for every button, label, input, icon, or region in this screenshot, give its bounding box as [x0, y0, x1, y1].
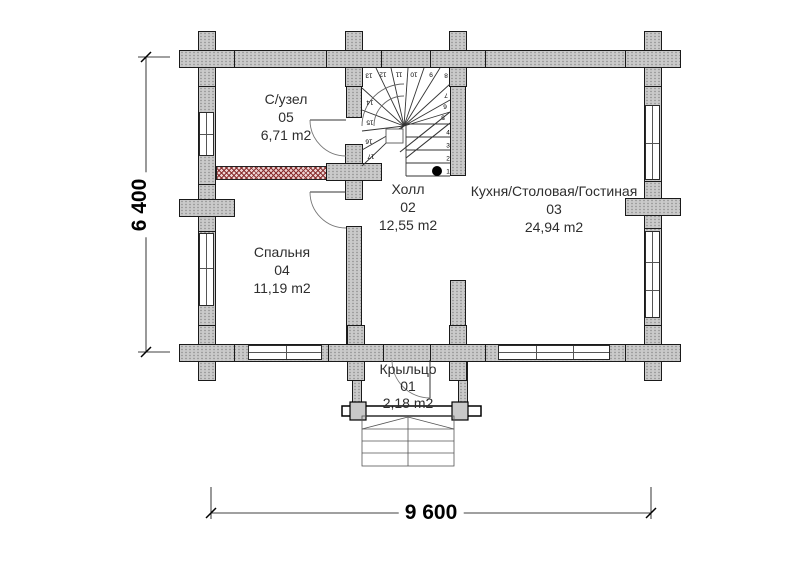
room-area: 12,55 m2	[379, 216, 437, 234]
dimension-width: 9 600	[399, 501, 464, 525]
room-label-bathroom: С/узел 05 6,71 m2	[261, 90, 312, 144]
stair-step-number: 11	[395, 71, 402, 78]
stair-step-number: 9	[429, 71, 433, 78]
stair-step-number: 14	[366, 99, 374, 106]
floor-plan: 1 2 3 4 5 6 7 8 9 10 11 12 13 14 15 16 1…	[0, 0, 800, 566]
stair-step-number: 2	[446, 156, 450, 163]
stair-step-number: 16	[365, 138, 373, 145]
porch-steps	[362, 416, 454, 466]
room-name: С/узел	[261, 90, 312, 108]
stair-start-dot	[432, 166, 442, 176]
room-number: 02	[379, 198, 437, 216]
stair-step-number: 17	[367, 153, 375, 160]
door-bedroom	[310, 192, 346, 228]
stair-step-number: 7	[444, 92, 448, 99]
stair-step-number: 4	[446, 130, 450, 137]
doors	[310, 120, 430, 398]
stair-step-number: 12	[379, 71, 387, 78]
door-bathroom	[310, 120, 346, 156]
room-label-hall: Холл 02 12,55 m2	[379, 180, 437, 234]
porch-post	[350, 402, 366, 420]
stair-break-line	[406, 123, 450, 158]
dimension-height: 6 400	[128, 173, 152, 238]
stair-step-number: 5	[441, 114, 445, 121]
stair-landing-post	[386, 129, 403, 143]
room-area: 2,18 m2	[379, 395, 436, 412]
room-number: 04	[253, 261, 310, 279]
room-name: Спальня	[253, 243, 310, 261]
stair-step-number: 10	[410, 71, 418, 78]
room-label-kitchen: Кухня/Столовая/Гостиная 03 24,94 m2	[471, 182, 638, 236]
room-area: 6,71 m2	[261, 126, 312, 144]
stair-step-number: 6	[443, 103, 447, 110]
stair-step-number: 8	[444, 72, 448, 79]
stair-step-number: 3	[446, 143, 450, 150]
plan-linework: 1 2 3 4 5 6 7 8 9 10 11 12 13 14 15 16 1…	[0, 0, 800, 566]
room-name: Крыльцо	[379, 361, 436, 378]
room-name: Кухня/Столовая/Гостиная	[471, 182, 638, 200]
room-label-bedroom: Спальня 04 11,19 m2	[253, 243, 310, 297]
room-area: 11,19 m2	[253, 279, 310, 297]
room-number: 05	[261, 108, 312, 126]
stair-step-number: 13	[365, 72, 373, 79]
stair-step-number: 1	[446, 169, 450, 176]
room-name: Холл	[379, 180, 437, 198]
room-label-porch: Крыльцо 01 2,18 m2	[379, 361, 436, 412]
dimension-lines	[138, 52, 656, 519]
room-area: 24,94 m2	[471, 218, 638, 236]
room-number: 01	[379, 378, 436, 395]
stairs: 1 2 3 4 5 6 7 8 9 10 11 12 13 14 15 16 1…	[362, 68, 450, 176]
stair-step-number: 15	[366, 119, 374, 126]
room-number: 03	[471, 200, 638, 218]
